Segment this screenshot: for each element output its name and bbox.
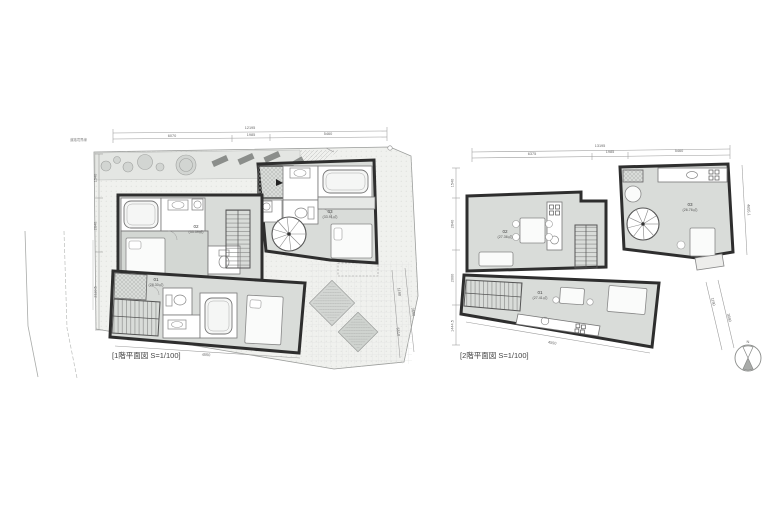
bed-icon xyxy=(331,224,372,258)
plan-1f-title: [1階平面図 S=1/100] xyxy=(112,350,181,360)
road-boundary-lines: 道路境界線 xyxy=(25,137,93,378)
dim-1f-top-total: 12195 xyxy=(245,126,256,130)
dim-1f-right1: 1190 xyxy=(397,288,402,297)
dim-2f-top-total: 13195 xyxy=(595,144,606,148)
unit-03-2f-area: (26.76㎡) xyxy=(683,207,698,212)
unit-03-block-1f: 03 (33.91㎡) xyxy=(258,160,377,263)
north-compass-icon: N xyxy=(735,339,761,371)
bathtub-icon xyxy=(323,170,368,193)
dim-1f-top-seg3: 5460 xyxy=(324,132,332,136)
sofa-icon xyxy=(479,252,513,266)
spiral-stair-icon xyxy=(272,217,306,251)
bed-icon xyxy=(607,285,647,314)
unit-03-block-2f: 03 (26.76㎡) xyxy=(620,164,733,270)
dim-2f-bottom: 4550 xyxy=(548,340,557,345)
unit-02-1f-area: (33.39㎡) xyxy=(189,229,204,234)
dim-1f-left2: 2640 xyxy=(94,222,98,230)
plan-1f: 03 (33.91㎡) xyxy=(94,126,419,369)
plan-2f: 02 (27.36㎡) xyxy=(451,144,762,371)
dim-2f-top-seg1: 6375 xyxy=(528,152,536,156)
stair-icon xyxy=(575,225,597,268)
dim-2f-top-seg2: 1985 xyxy=(606,150,614,154)
dim-2f-right-diag1: 1190 xyxy=(710,297,716,306)
unit-02-1f-id: 02 xyxy=(193,224,199,229)
unit-01-2f-area: (27.41㎡) xyxy=(533,295,548,300)
dim-2f-left1: 1540 xyxy=(451,179,455,187)
unit-01-2f-id: 01 xyxy=(537,290,543,295)
bathtub-icon xyxy=(205,298,232,334)
dim-2f-left2: 2640 xyxy=(451,220,455,228)
dim-1f-left3: 2110.5 xyxy=(94,286,98,297)
compass-n-label: N xyxy=(747,339,750,344)
sink-icon xyxy=(290,168,310,178)
unit-01-1f-area: (28.30㎡) xyxy=(149,282,164,287)
toilet-icon xyxy=(295,207,314,219)
unit-03-1f-area: (33.91㎡) xyxy=(323,214,338,219)
dim-2f-right-vert: 4655.1 xyxy=(746,204,751,216)
unit-03-1f-id: 03 xyxy=(327,209,333,214)
unit-01-block-2f: 01 (27.41㎡) xyxy=(461,275,659,347)
plan-2f-title: [2階平面図 S=1/100] xyxy=(460,350,529,360)
bed-icon xyxy=(245,295,283,345)
dim-1f-top-seg1: 6070 xyxy=(168,134,176,138)
dim-2f-right-diag2: 3690 xyxy=(726,313,732,322)
unit-01-1f-id: 01 xyxy=(153,277,159,282)
dim-2f-left4: 1444.5 xyxy=(451,320,455,332)
dim-1f-left1: 1540 xyxy=(94,174,98,182)
stair-icon xyxy=(226,210,250,268)
floor-plan-canvas: 道路境界線 xyxy=(0,0,780,516)
boundary-note-label: 道路境界線 xyxy=(70,137,88,142)
stair-icon xyxy=(464,280,522,311)
entry-tile-icon xyxy=(114,273,147,300)
unit-02-2f-area: (27.36㎡) xyxy=(498,234,513,239)
dim-2f-top-seg3: 5460 xyxy=(675,149,683,153)
dim-2f-left3: 2000 xyxy=(451,274,455,282)
closet-icon xyxy=(623,170,643,182)
washer-icon xyxy=(192,199,203,210)
bathtub-icon xyxy=(124,201,158,228)
unit-01-block-1f: 01 (28.30㎡) xyxy=(110,271,305,353)
round-table-icon xyxy=(625,186,641,202)
dim-1f-top-seg2: 1985 xyxy=(247,133,255,137)
unit-03-2f-id: 03 xyxy=(687,202,693,207)
spiral-stair-icon xyxy=(627,208,659,240)
dim-1f-bottom: 4550 xyxy=(202,353,211,358)
kitchen-counter-icon xyxy=(658,168,727,182)
sink-icon xyxy=(168,200,188,210)
floor-plan-sheet: 道路境界線 xyxy=(0,0,780,516)
closet-icon xyxy=(318,197,375,209)
unit-02-2f-id: 02 xyxy=(502,229,508,234)
sink-icon xyxy=(168,320,186,329)
stair-icon xyxy=(112,299,160,336)
unit-02-block-2f: 02 (27.36㎡) xyxy=(467,192,606,271)
